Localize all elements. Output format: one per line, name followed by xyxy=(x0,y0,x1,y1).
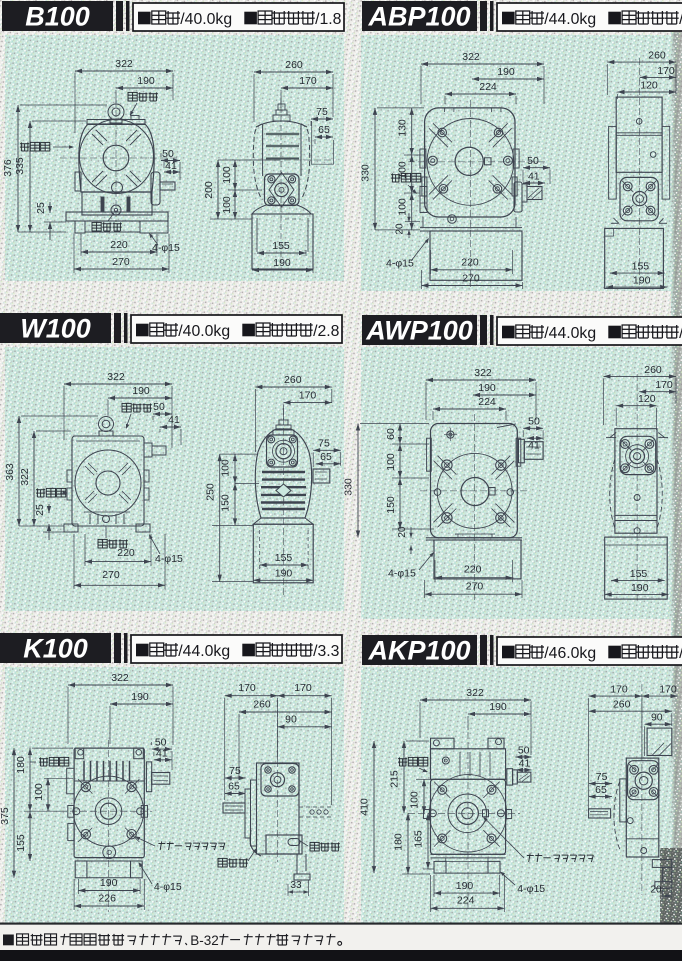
svg-text:322: 322 xyxy=(462,51,480,63)
svg-text:100: 100 xyxy=(220,459,232,477)
svg-text:190: 190 xyxy=(633,275,651,287)
svg-text:260: 260 xyxy=(613,699,631,711)
svg-text:90: 90 xyxy=(285,714,297,726)
svg-text:/44.0kg: /44.0kg xyxy=(544,325,596,342)
svg-text:75: 75 xyxy=(229,765,241,777)
svg-text:155: 155 xyxy=(630,568,648,580)
svg-text:/46.0kg: /46.0kg xyxy=(544,645,596,662)
svg-text:155: 155 xyxy=(632,261,650,273)
svg-text:260: 260 xyxy=(644,364,662,376)
svg-text:375: 375 xyxy=(0,807,11,825)
svg-text:75: 75 xyxy=(316,106,328,118)
svg-text:190: 190 xyxy=(100,877,118,889)
svg-text:260: 260 xyxy=(253,699,271,711)
svg-text:50: 50 xyxy=(518,745,530,757)
svg-text:226: 226 xyxy=(98,893,116,905)
svg-text:B-32: B-32 xyxy=(190,933,219,948)
svg-text:155: 155 xyxy=(272,240,290,252)
svg-text:170: 170 xyxy=(299,75,317,87)
svg-text:41: 41 xyxy=(528,171,540,183)
svg-text:75: 75 xyxy=(596,771,608,783)
svg-text:165: 165 xyxy=(413,830,425,848)
svg-text:20: 20 xyxy=(397,526,408,538)
svg-text:65: 65 xyxy=(228,781,240,793)
svg-text:322: 322 xyxy=(466,687,484,699)
svg-text:25: 25 xyxy=(34,504,46,516)
svg-text:AWP100: AWP100 xyxy=(365,316,473,346)
svg-text:K100: K100 xyxy=(23,634,88,664)
svg-text:170: 170 xyxy=(299,390,317,402)
svg-text:410: 410 xyxy=(359,798,371,816)
svg-text:W100: W100 xyxy=(20,314,91,344)
svg-text:4-φ15: 4-φ15 xyxy=(154,881,182,893)
svg-text:60: 60 xyxy=(385,428,397,440)
svg-text:170: 170 xyxy=(659,684,677,696)
svg-text:170: 170 xyxy=(294,682,312,694)
svg-text:220: 220 xyxy=(117,547,135,559)
svg-text:ABP100: ABP100 xyxy=(367,2,470,32)
svg-text:170: 170 xyxy=(238,682,256,694)
svg-text:180: 180 xyxy=(393,833,405,851)
svg-text:/2.8: /2.8 xyxy=(313,323,340,340)
svg-text:322: 322 xyxy=(107,371,125,383)
svg-text:4-φ15: 4-φ15 xyxy=(386,258,414,270)
svg-text:4-φ15: 4-φ15 xyxy=(155,553,183,565)
svg-text:65: 65 xyxy=(320,451,332,463)
svg-text:376: 376 xyxy=(2,159,14,177)
svg-text:120: 120 xyxy=(640,79,658,91)
svg-text:260: 260 xyxy=(284,374,302,386)
svg-text:/1.8: /1.8 xyxy=(315,11,342,28)
svg-text:270: 270 xyxy=(466,581,484,593)
svg-text:/3.3: /3.3 xyxy=(313,643,340,660)
svg-text:/44.0kg: /44.0kg xyxy=(178,643,230,660)
svg-text:224: 224 xyxy=(479,81,497,93)
svg-text:100: 100 xyxy=(33,783,45,801)
svg-text:190: 190 xyxy=(631,582,649,594)
svg-text:4-φ15: 4-φ15 xyxy=(517,883,545,895)
svg-text:120: 120 xyxy=(638,393,656,405)
svg-text:250: 250 xyxy=(204,483,216,501)
svg-text:190: 190 xyxy=(497,66,515,78)
svg-text:155: 155 xyxy=(275,552,293,564)
svg-text:260: 260 xyxy=(648,50,666,62)
svg-text:260: 260 xyxy=(285,59,303,71)
svg-text:190: 190 xyxy=(131,691,149,703)
svg-text:170: 170 xyxy=(657,65,675,77)
svg-text:155: 155 xyxy=(15,834,27,852)
svg-text:50: 50 xyxy=(527,155,539,167)
svg-text:322: 322 xyxy=(19,468,31,486)
svg-text:220: 220 xyxy=(461,257,479,269)
svg-text:41: 41 xyxy=(165,160,177,172)
svg-text:33: 33 xyxy=(290,880,302,891)
svg-text:363: 363 xyxy=(4,463,16,481)
svg-text:4-φ15: 4-φ15 xyxy=(388,568,416,580)
svg-text:270: 270 xyxy=(102,569,120,581)
svg-text:65: 65 xyxy=(595,784,607,796)
svg-text:200: 200 xyxy=(203,181,215,199)
svg-text:170: 170 xyxy=(610,684,628,696)
svg-text:50: 50 xyxy=(153,401,165,413)
svg-text:270: 270 xyxy=(112,256,130,268)
svg-text:50: 50 xyxy=(528,416,540,428)
svg-text:220: 220 xyxy=(110,239,128,251)
svg-text:41: 41 xyxy=(156,748,168,760)
svg-text:150: 150 xyxy=(220,494,232,512)
svg-text:41: 41 xyxy=(519,758,531,770)
svg-text:/40.0kg: /40.0kg xyxy=(180,11,232,28)
svg-text:4-φ15: 4-φ15 xyxy=(152,242,180,254)
svg-text:20: 20 xyxy=(395,223,406,235)
svg-text:90: 90 xyxy=(651,712,663,724)
svg-text:322: 322 xyxy=(115,58,133,70)
svg-text:322: 322 xyxy=(111,672,129,684)
svg-text:224: 224 xyxy=(478,396,496,408)
svg-text:/44.0kg: /44.0kg xyxy=(544,11,596,28)
svg-text:100: 100 xyxy=(221,196,233,214)
svg-text:130: 130 xyxy=(397,119,409,137)
svg-text:190: 190 xyxy=(489,701,507,713)
svg-text:330: 330 xyxy=(343,478,355,496)
svg-text:20: 20 xyxy=(650,885,662,896)
svg-text:190: 190 xyxy=(137,75,155,87)
svg-text:100: 100 xyxy=(385,453,397,471)
svg-text:AKP100: AKP100 xyxy=(367,636,470,666)
svg-text:224: 224 xyxy=(457,895,475,907)
svg-text:41: 41 xyxy=(168,414,180,426)
svg-text:270: 270 xyxy=(462,273,480,285)
svg-text:220: 220 xyxy=(464,564,482,576)
svg-text:190: 190 xyxy=(273,257,291,269)
svg-text:/40.0kg: /40.0kg xyxy=(178,323,230,340)
svg-text:335: 335 xyxy=(14,157,26,175)
svg-text:100: 100 xyxy=(397,161,409,179)
svg-text:190: 190 xyxy=(456,880,474,892)
svg-text:65: 65 xyxy=(318,124,330,136)
svg-text:190: 190 xyxy=(275,567,293,579)
svg-text:75: 75 xyxy=(318,437,330,449)
svg-text:190: 190 xyxy=(478,382,496,394)
svg-text:100: 100 xyxy=(221,166,233,184)
svg-text:170: 170 xyxy=(655,379,673,391)
svg-text:100: 100 xyxy=(397,198,409,216)
svg-text:215: 215 xyxy=(389,770,401,788)
svg-text:330: 330 xyxy=(360,164,372,182)
svg-text:150: 150 xyxy=(385,496,397,514)
svg-text:180: 180 xyxy=(15,756,27,774)
svg-text:B100: B100 xyxy=(25,2,90,32)
svg-text:190: 190 xyxy=(132,385,150,397)
svg-text:25: 25 xyxy=(35,202,47,214)
svg-text:322: 322 xyxy=(474,367,492,379)
svg-text:100: 100 xyxy=(409,791,421,809)
